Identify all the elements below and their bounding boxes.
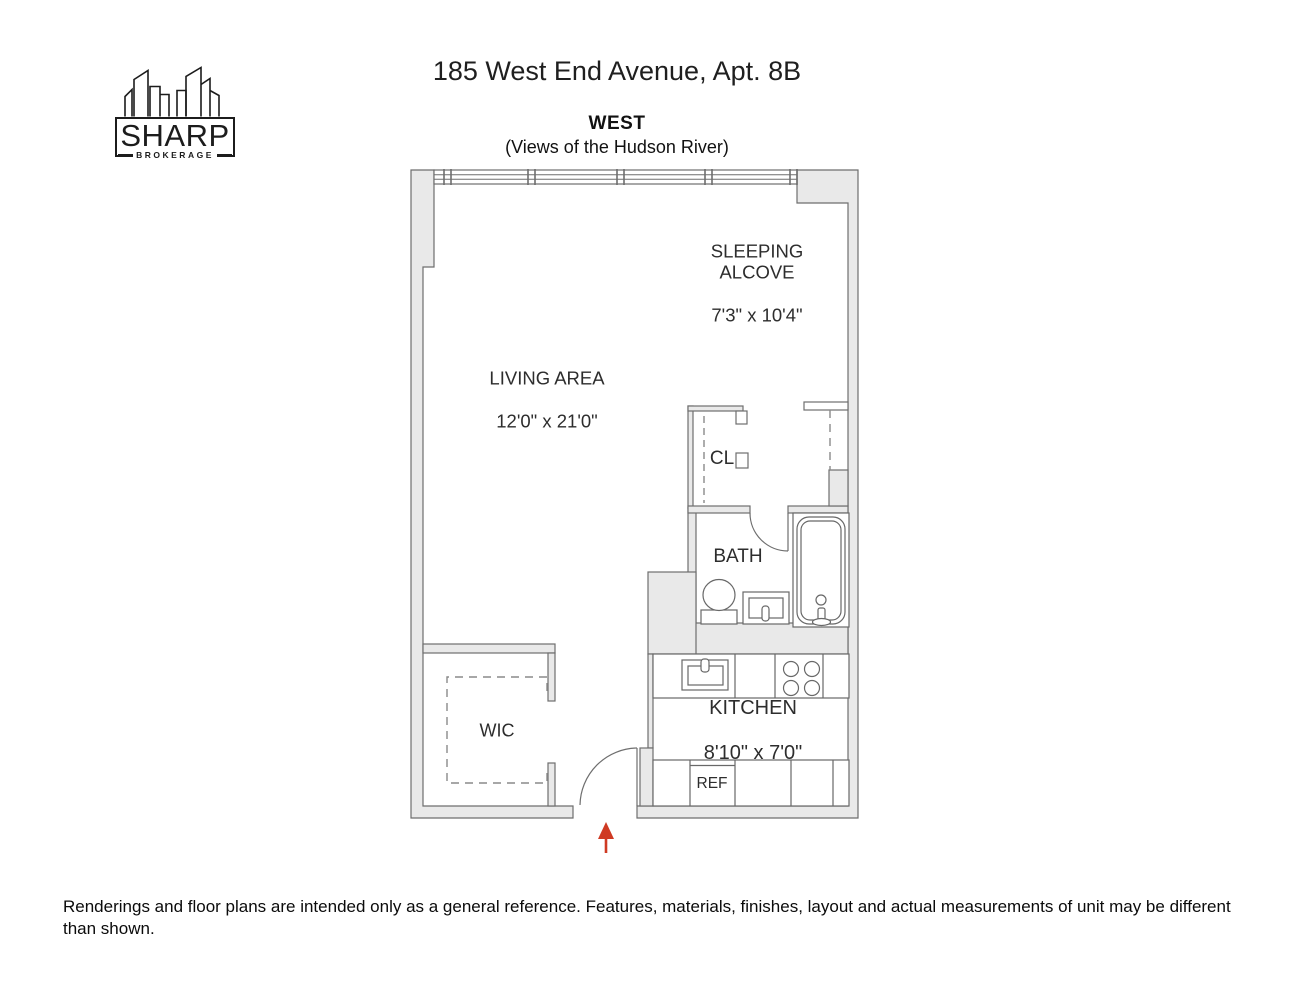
wic-label: WIC [480,721,515,742]
wall-above-tub [829,470,848,506]
sleeping-alcove-dimensions: 7'3" x 10'4" [711,305,804,327]
sleeping-alcove-name: SLEEPING ALCOVE [711,240,804,283]
wall-closet-top [688,406,743,411]
wall-wic-top [423,644,555,653]
refrigerator-label: REF [697,775,728,793]
wall-living-kitchen-block [648,572,696,654]
bathtub-icon [793,513,849,627]
kitchen-label: KITCHEN 8'10" x 7'0" [704,674,803,787]
bath-label: BATH [713,546,762,568]
vanity-sink-icon [743,592,789,624]
closet-door-panel [736,453,748,468]
window-band [434,169,797,185]
entry-arrow-icon [598,822,614,853]
wall-wic-right-upper [548,653,555,701]
wall-bath-top-left [688,506,750,513]
kitchen-dimensions: 8'10" x 7'0" [704,741,803,764]
living-area-label: LIVING AREA 12'0" x 21'0" [489,345,604,453]
wall-closet-left [688,406,693,508]
floorplan-page: SHARP BROKERAGE 185 West End Avenue, Apt… [0,0,1294,1000]
wall-bath-top-right [788,506,848,513]
living-area-dimensions: 12'0" x 21'0" [489,410,604,432]
wall-kitchen-left [648,654,653,748]
living-area-name: LIVING AREA [489,367,604,389]
sleeping-alcove-label: SLEEPING ALCOVE 7'3" x 10'4" [711,219,804,348]
wall-band-below-bath [688,623,848,654]
disclaimer-text: Renderings and floor plans are intended … [63,896,1238,939]
kitchen-name: KITCHEN [704,696,803,719]
toilet-icon [701,580,737,625]
floorplan-drawing [0,0,1294,1000]
entry-door-arc [580,748,637,806]
closet-label: CL [710,448,734,470]
wall-wic-right-lower [548,763,555,806]
wall-entry-jamb [640,748,653,806]
alcove-partition [804,402,848,470]
closet-door-jamb-top [736,411,747,424]
